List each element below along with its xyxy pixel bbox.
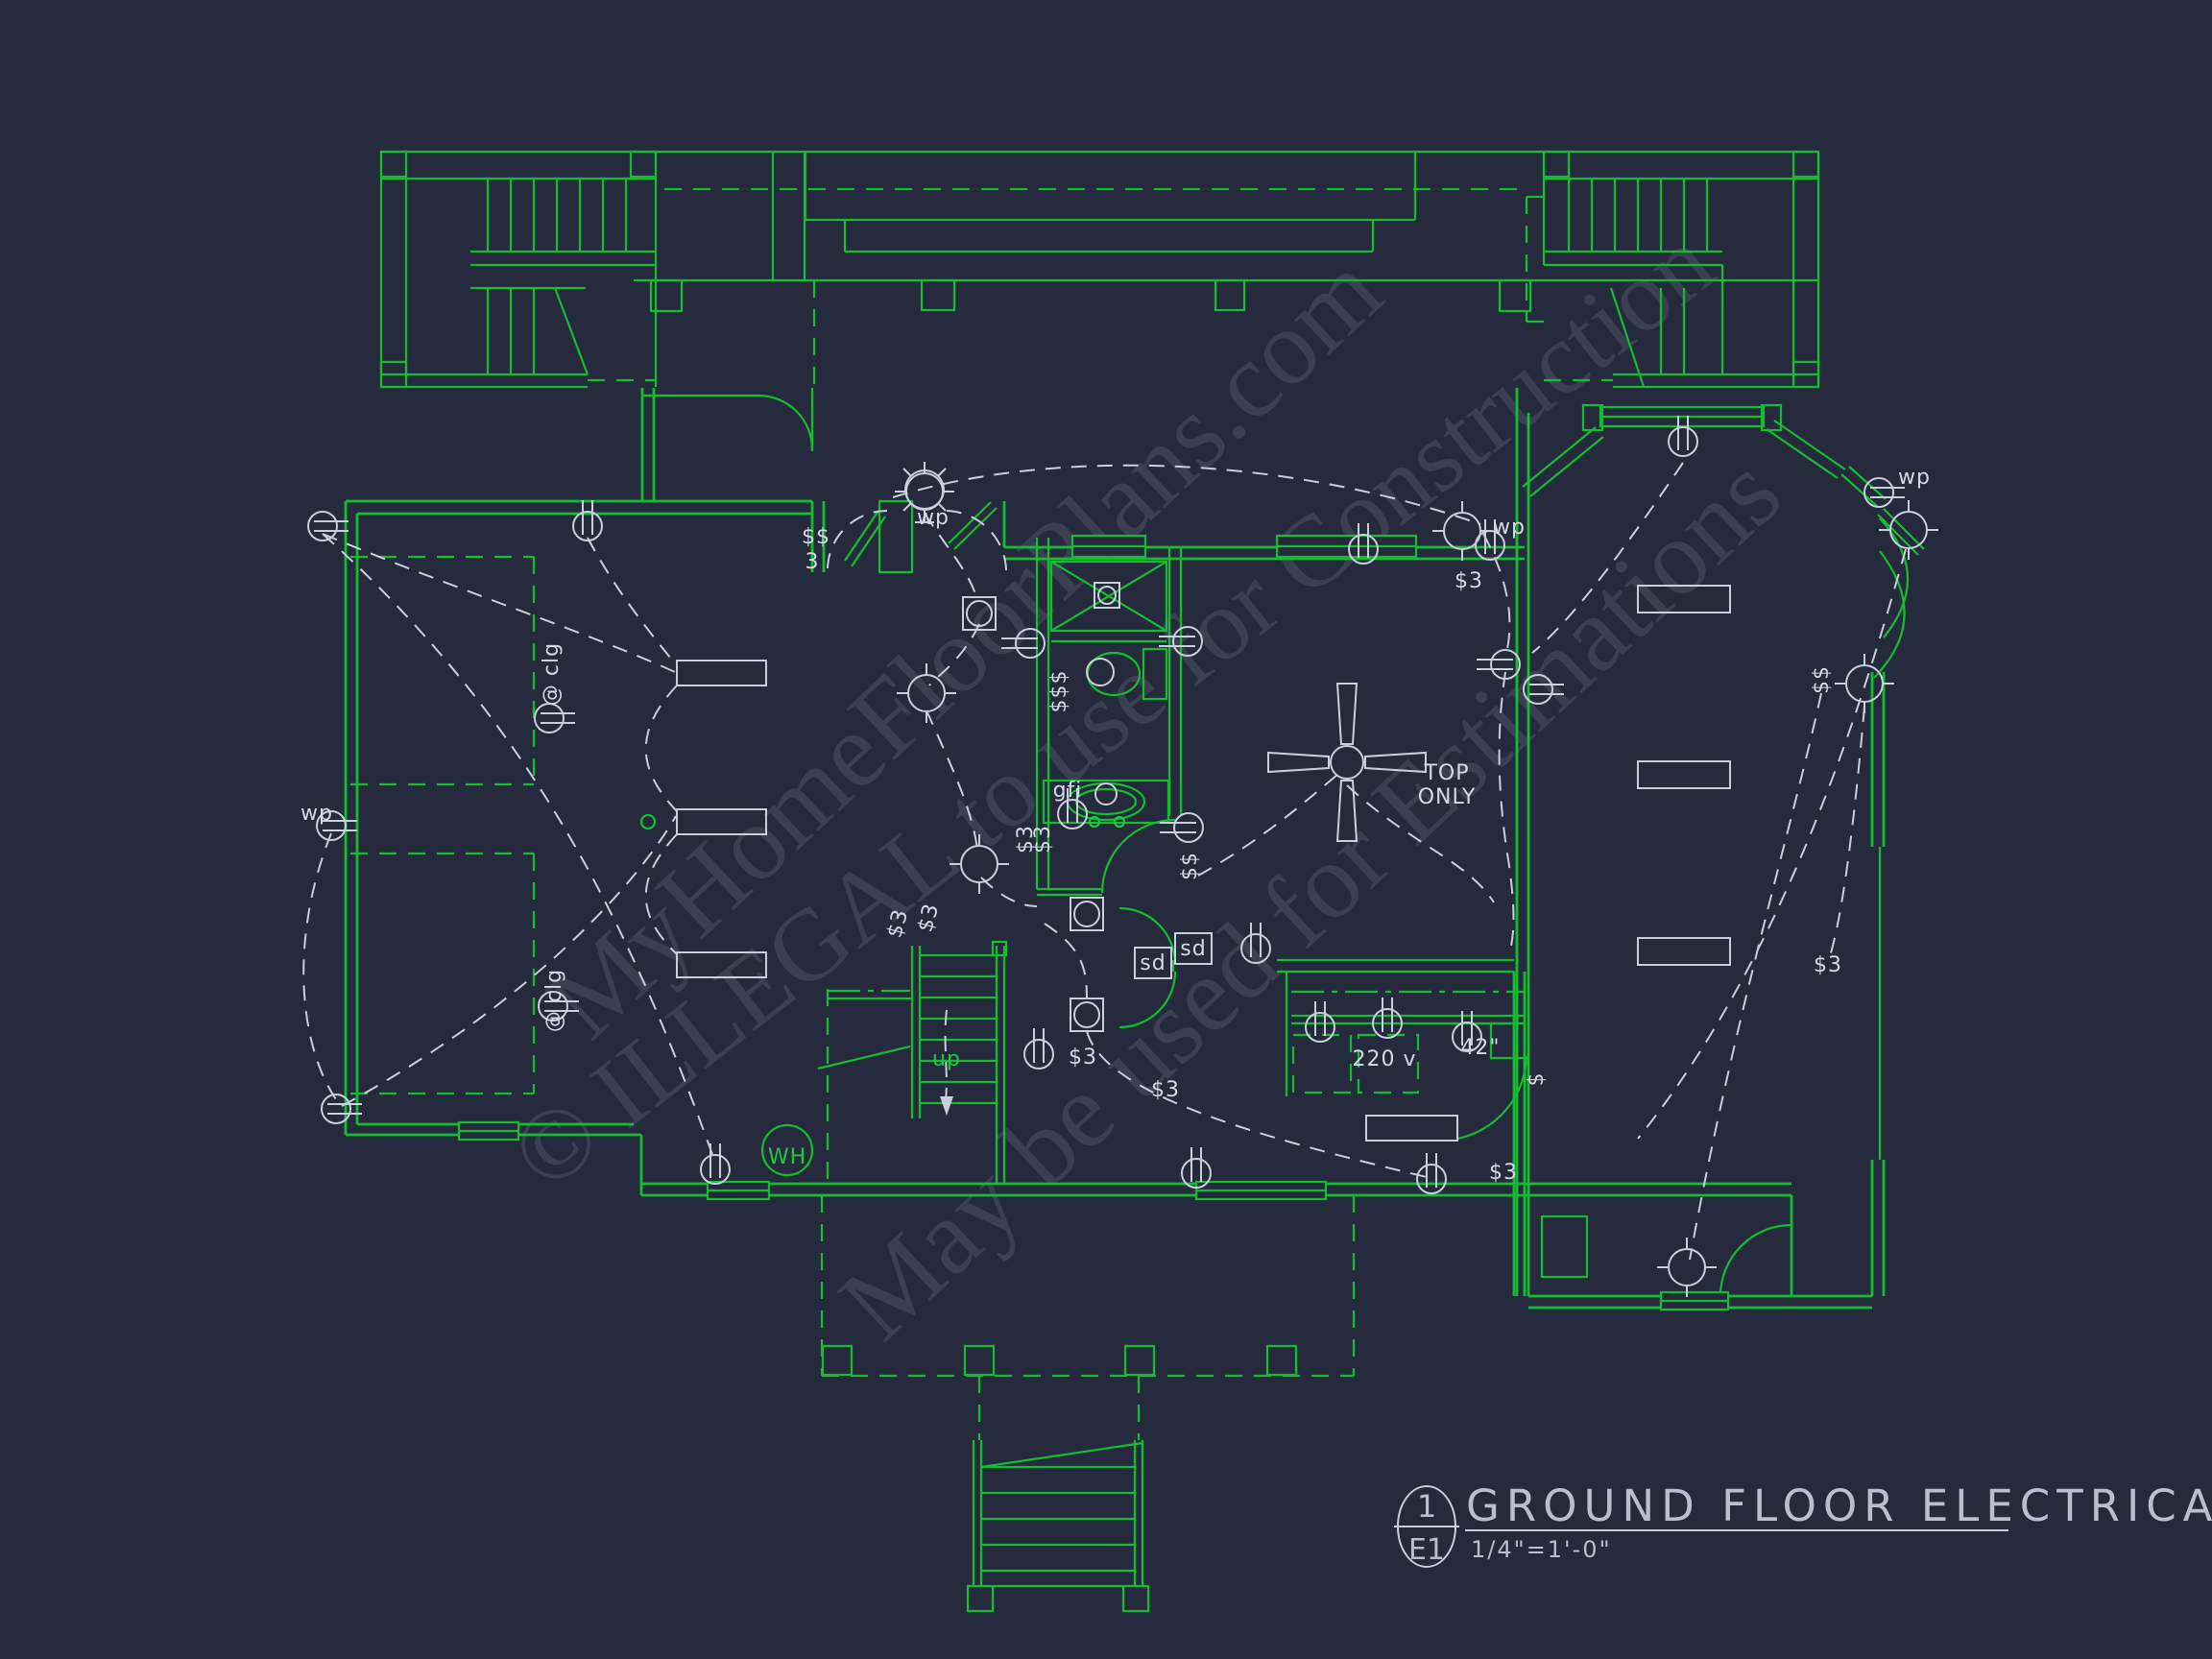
sheet-number: 1 xyxy=(1417,1488,1436,1525)
drawing-scale: 1/4"=1'-0" xyxy=(1471,1536,1612,1563)
plan-annotation: $3 xyxy=(1069,1046,1097,1070)
floor-outlet xyxy=(641,815,655,829)
duplex-outlet-icon xyxy=(1373,998,1402,1038)
duplex-outlet-icon xyxy=(535,704,575,733)
plan-annotation: wp xyxy=(1898,466,1931,490)
plan-annotation: gfi xyxy=(1053,779,1083,803)
plan-annotation: 42" xyxy=(1460,1036,1500,1060)
plan-green-linework xyxy=(346,152,1924,1611)
plan-annotation: WH xyxy=(768,1145,806,1169)
plan-annotation: ONLY xyxy=(1418,785,1477,809)
stair-block-left xyxy=(381,152,656,387)
plan-annotation: 220 v xyxy=(1352,1047,1416,1071)
duplex-outlet-icon xyxy=(573,500,602,541)
drawing-title: GROUND FLOOR ELECTRICAL PLAN xyxy=(1466,1480,2212,1531)
ceiling-light-icon xyxy=(1657,1238,1717,1297)
wall-sconce-icon xyxy=(1160,813,1203,842)
utility-box xyxy=(1542,1216,1587,1277)
plan-annotation: sd xyxy=(1140,951,1166,975)
sheet-code: E1 xyxy=(1408,1533,1445,1567)
plan-annotation: $3 xyxy=(1031,825,1055,854)
plan-annotation: $3 xyxy=(1151,1078,1180,1102)
plan-annotation: $3 xyxy=(1455,569,1483,593)
cad-drawing-canvas: MyHomeFloorPlans.com © ILLEGAL to use fo… xyxy=(0,0,2212,1659)
ceiling-light-icon xyxy=(1879,500,1938,560)
plan-annotation: $$ xyxy=(1178,852,1202,880)
plan-annotation: wp xyxy=(1493,516,1526,540)
plan-annotation: $3 xyxy=(1814,953,1842,977)
plan-annotation: $$ xyxy=(1810,665,1834,694)
plan-annotation: 3 xyxy=(805,550,820,574)
plan-annotation: $$$ xyxy=(1047,670,1071,713)
plan-annotation: sd xyxy=(1180,937,1206,961)
duplex-outlet-icon xyxy=(1417,1153,1446,1193)
plan-annotation: up xyxy=(932,1047,961,1071)
plan-annotation: $ xyxy=(1525,1072,1549,1087)
plan-annotation: $$ xyxy=(802,525,830,549)
plan-annotation: @ clg xyxy=(540,642,564,706)
floor-plan-svg: MyHomeFloorPlans.com © ILLEGAL to use fo… xyxy=(0,0,2212,1659)
duplex-outlet-icon xyxy=(701,1143,730,1184)
rear-steps xyxy=(968,1440,1148,1611)
plan-annotation: $3 xyxy=(1489,1161,1518,1185)
stair-arrow-head xyxy=(940,1096,953,1116)
plan-annotation: wp xyxy=(301,802,333,826)
recessed-can-light-icon xyxy=(1070,898,1103,930)
title-block: 1 E1 GROUND FLOOR ELECTRICAL PLAN 1/4"=1… xyxy=(1394,1480,2212,1567)
deck-posts xyxy=(651,280,1530,311)
plan-annotation: TOP xyxy=(1423,761,1469,785)
plan-annotation: wp xyxy=(917,506,950,530)
plan-annotation: @ clg xyxy=(542,969,566,1032)
